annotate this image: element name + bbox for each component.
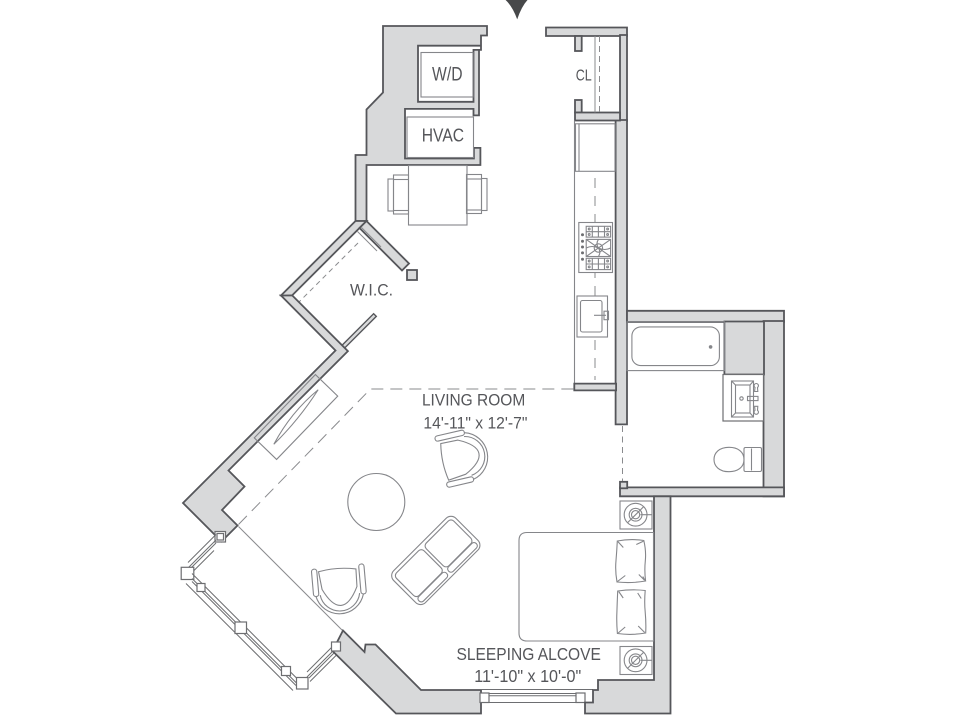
svg-text:LIVING ROOM: LIVING ROOM xyxy=(422,391,525,410)
svg-text:14'-11" x 12'-7": 14'-11" x 12'-7" xyxy=(423,413,527,432)
svg-text:W.I.C.: W.I.C. xyxy=(350,281,393,300)
svg-text:HVAC: HVAC xyxy=(422,125,464,145)
svg-text:W/D: W/D xyxy=(432,64,463,85)
svg-text:CL: CL xyxy=(576,68,592,85)
svg-text:11'-10" x 10'-0": 11'-10" x 10'-0" xyxy=(474,666,581,686)
svg-text:SLEEPING ALCOVE: SLEEPING ALCOVE xyxy=(456,644,601,664)
